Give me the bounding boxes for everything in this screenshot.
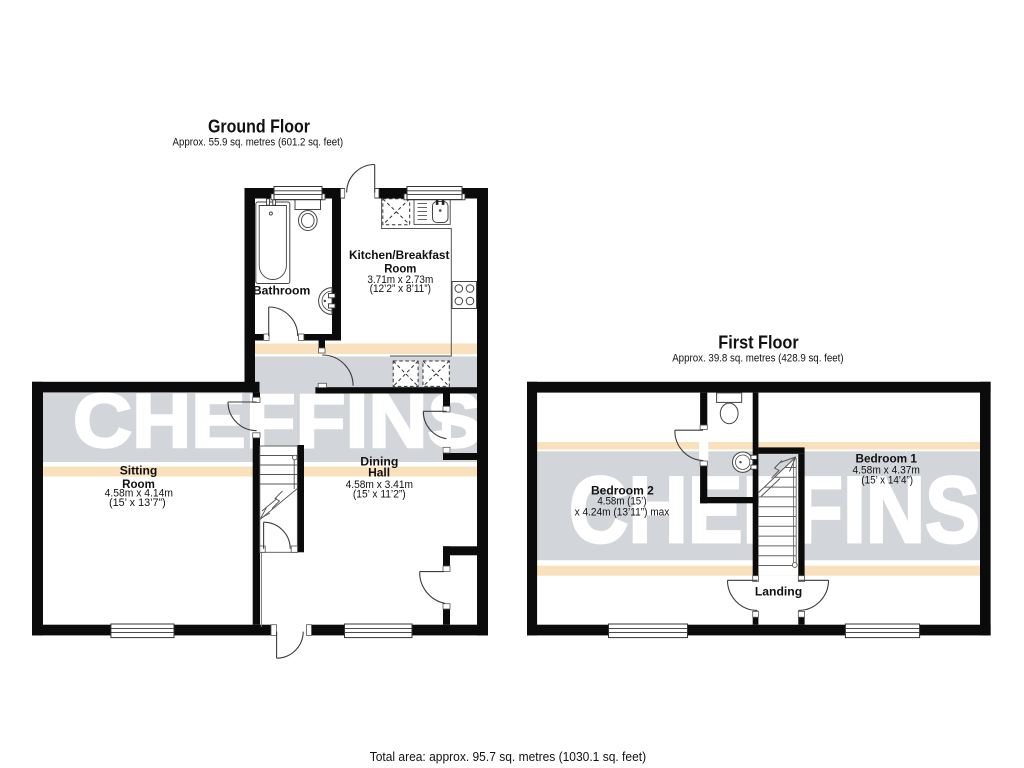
svg-text:First Floor: First Floor [718,332,798,353]
svg-text:Ground Floor: Ground Floor [208,116,310,137]
svg-text:(12’2” x 8’11”): (12’2” x 8’11”) [370,283,431,295]
svg-text:Kitchen/Breakfast: Kitchen/Breakfast [349,248,449,262]
svg-text:x 4.24m (13’11”) max: x 4.24m (13’11”) max [575,506,670,518]
svg-text:(15’ x 13’7”): (15’ x 13’7”) [109,497,166,509]
svg-text:Approx. 39.8 sq. metres (428.9: Approx. 39.8 sq. metres (428.9 sq. feet) [672,352,843,364]
svg-text:Bathroom: Bathroom [253,284,310,298]
svg-text:Landing: Landing [755,584,802,598]
svg-text:Approx. 55.9 sq. metres (601.2: Approx. 55.9 sq. metres (601.2 sq. feet) [173,136,344,148]
svg-text:Sitting: Sitting [120,464,158,478]
svg-text:Hall: Hall [368,465,390,479]
svg-text:(15’ x 14’4”): (15’ x 14’4”) [861,475,913,487]
svg-text:Total area: approx. 95.7 sq. m: Total area: approx. 95.7 sq. metres (103… [370,749,646,764]
svg-text:(15’ x 11’2”): (15’ x 11’2”) [353,489,406,501]
